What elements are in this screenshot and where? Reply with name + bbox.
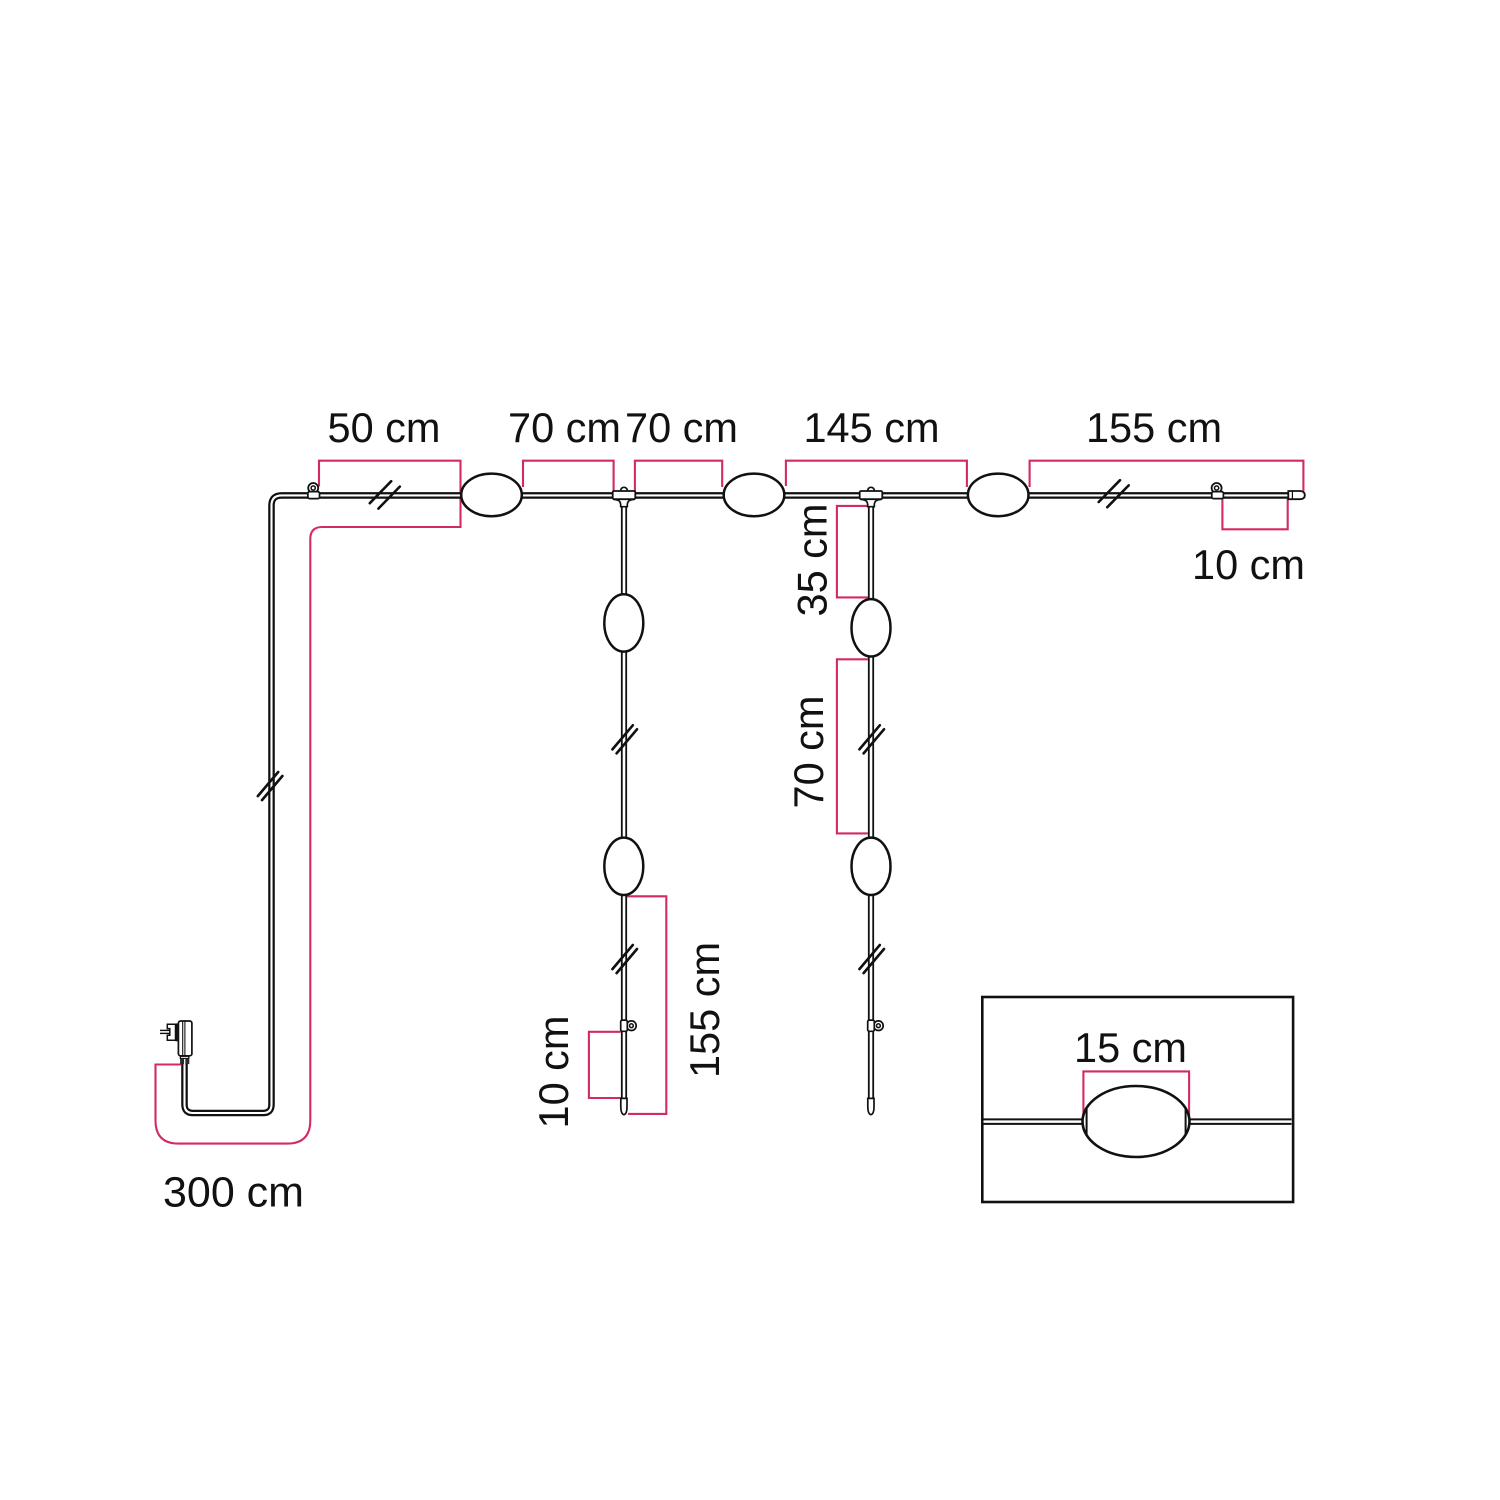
svg-text:50 cm: 50 cm	[327, 404, 440, 451]
svg-text:70 cm: 70 cm	[625, 404, 738, 451]
svg-text:300 cm: 300 cm	[163, 1169, 304, 1217]
svg-text:10 cm: 10 cm	[530, 1015, 577, 1128]
svg-text:15 cm: 15 cm	[1074, 1024, 1187, 1071]
svg-text:145 cm: 145 cm	[803, 404, 939, 451]
svg-text:70 cm: 70 cm	[508, 404, 621, 451]
svg-text:155 cm: 155 cm	[1086, 404, 1222, 451]
svg-text:35 cm: 35 cm	[789, 503, 836, 616]
svg-text:10 cm: 10 cm	[1192, 541, 1305, 588]
svg-text:70 cm: 70 cm	[785, 695, 832, 808]
svg-text:155 cm: 155 cm	[681, 942, 728, 1078]
